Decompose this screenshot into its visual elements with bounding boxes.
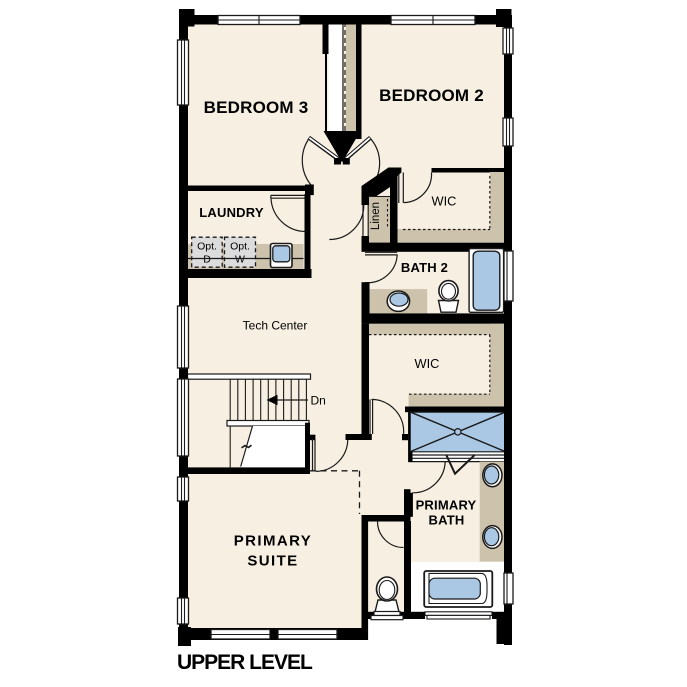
svg-text:W: W (235, 254, 245, 266)
svg-text:Tech Center: Tech Center (243, 319, 308, 333)
svg-text:PRIMARY: PRIMARY (234, 533, 312, 550)
svg-text:BEDROOM 3: BEDROOM 3 (204, 98, 309, 117)
svg-text:Opt.: Opt. (197, 241, 217, 253)
svg-text:LAUNDRY: LAUNDRY (199, 205, 264, 220)
svg-text:WIC: WIC (415, 356, 440, 371)
svg-text:Opt.: Opt. (230, 241, 250, 253)
svg-text:Linen: Linen (370, 202, 382, 230)
svg-text:PRIMARY: PRIMARY (416, 498, 477, 513)
svg-text:D: D (203, 254, 211, 266)
svg-text:BATH 2: BATH 2 (401, 260, 448, 275)
svg-text:BEDROOM 2: BEDROOM 2 (379, 86, 484, 105)
svg-text:UPPER LEVEL: UPPER LEVEL (177, 651, 313, 674)
svg-text:Dn: Dn (311, 394, 326, 408)
svg-text:BATH: BATH (429, 513, 465, 528)
svg-text:WIC: WIC (432, 194, 457, 209)
svg-text:SUITE: SUITE (247, 553, 298, 570)
